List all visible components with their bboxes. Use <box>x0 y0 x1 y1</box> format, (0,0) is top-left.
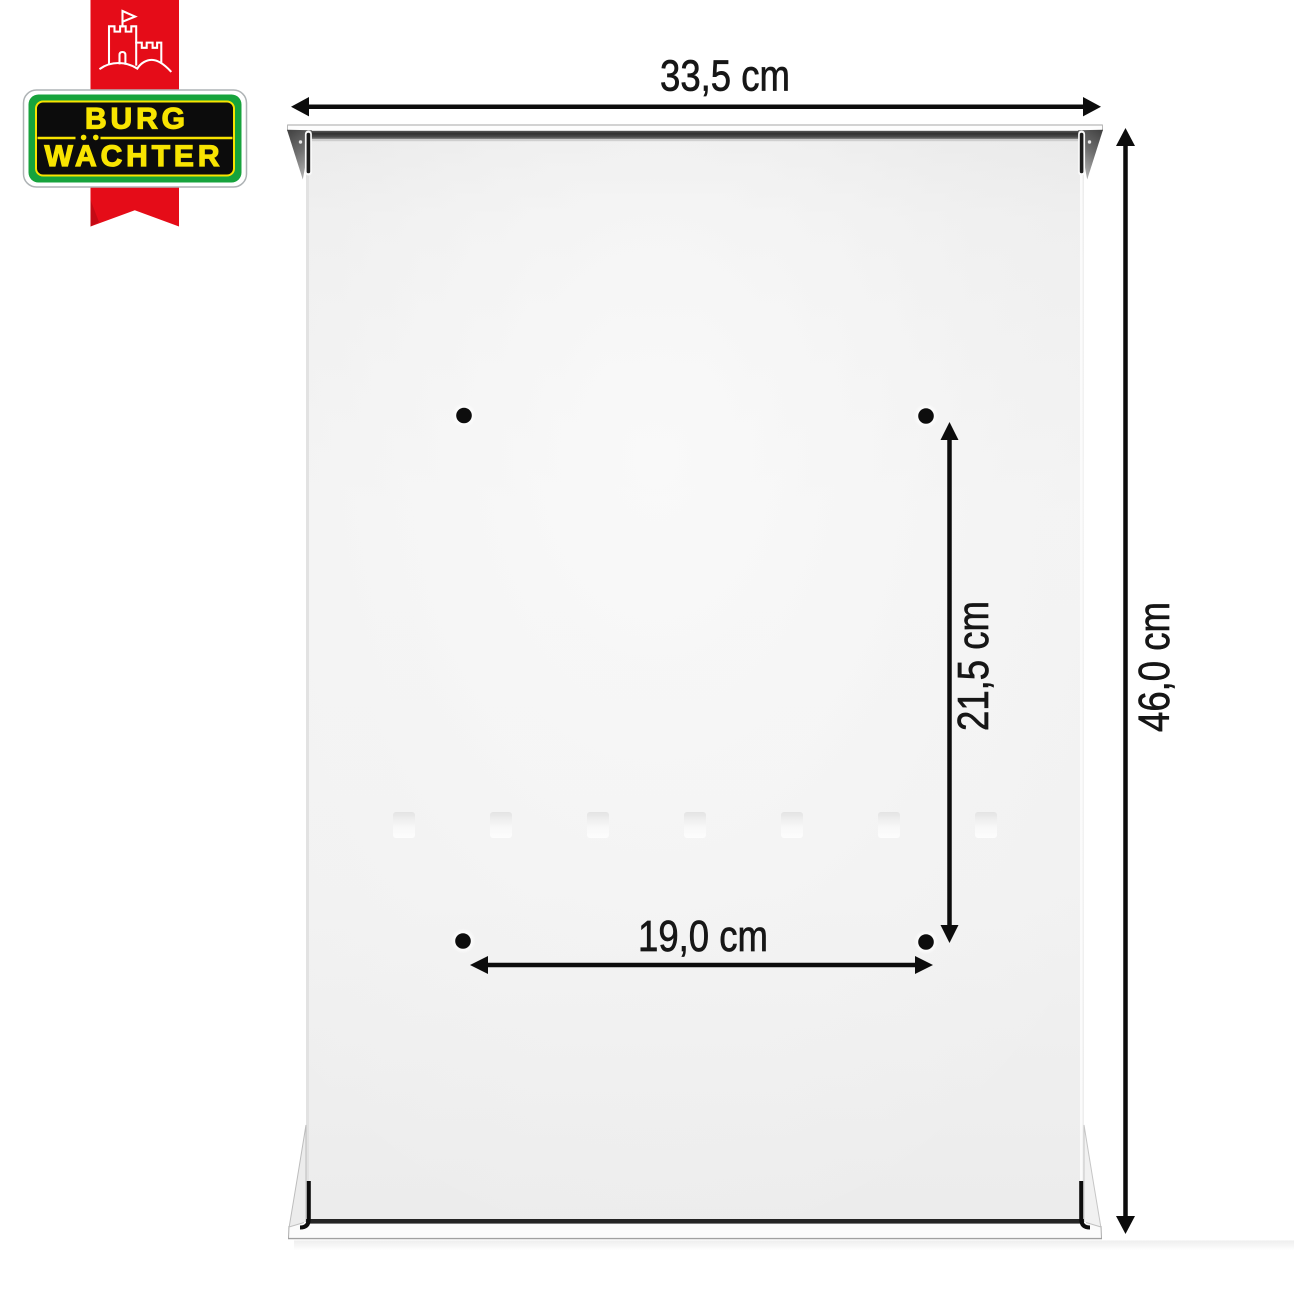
svg-text:WACHTER: WACHTER <box>45 140 220 173</box>
svg-text:46,0 cm: 46,0 cm <box>1130 602 1179 732</box>
svg-text:21,5 cm: 21,5 cm <box>949 601 998 731</box>
svg-text:19,0 cm: 19,0 cm <box>638 912 768 961</box>
svg-text:33,5 cm: 33,5 cm <box>660 52 790 101</box>
